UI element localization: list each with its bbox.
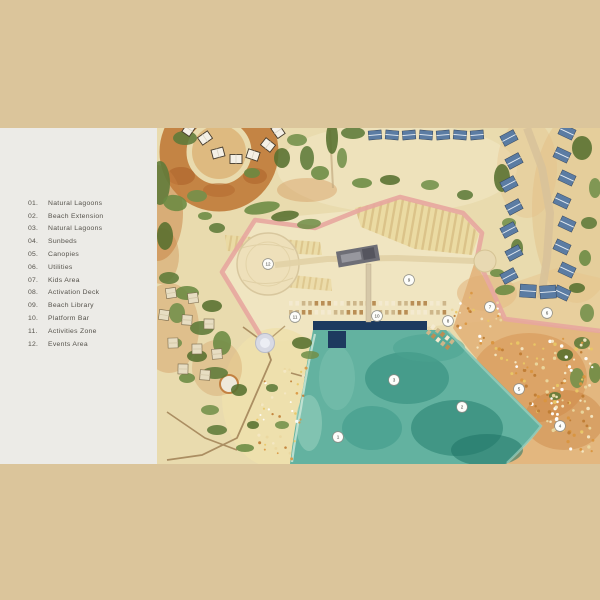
map-marker-12: 12 (263, 259, 274, 270)
legend-item-label: Natural Lagoons (48, 225, 102, 232)
legend-item-number: 10. (28, 315, 48, 322)
map-marker-2: 2 (457, 402, 468, 413)
legend-item-number: 05. (28, 251, 48, 258)
masterplan-aerial-rendering: 123456789101112 (157, 128, 600, 464)
legend-item: 05. Canopies (28, 248, 153, 261)
map-marker-4: 4 (555, 421, 566, 432)
legend-item-label: Activities Zone (48, 328, 97, 335)
legend-item-label: Utilities (48, 264, 73, 271)
legend-item-label: Activation Deck (48, 289, 99, 296)
legend-item-number: 03. (28, 225, 48, 232)
svg-text:8: 8 (447, 319, 450, 324)
legend-item: 02. Beach Extension (28, 210, 153, 223)
map-marker-5: 5 (514, 384, 525, 395)
map-marker-6: 6 (542, 308, 553, 319)
pool-square (328, 331, 346, 348)
legend-list: 01. Natural Lagoons 02. Beach Extension … (28, 197, 153, 351)
map-marker-9: 9 (404, 275, 415, 286)
legend-item-number: 04. (28, 238, 48, 245)
svg-text:2: 2 (461, 405, 464, 410)
svg-text:6: 6 (546, 311, 549, 316)
legend-item: 09. Beach Library (28, 299, 153, 312)
legend-item-number: 11. (28, 328, 48, 335)
legend-item-label: Beach Library (48, 302, 94, 309)
svg-text:10: 10 (374, 314, 380, 319)
lap-pool (313, 321, 427, 330)
map-marker-11: 11 (290, 312, 301, 323)
plaza-circle (474, 250, 496, 272)
pier-walkway (366, 264, 371, 322)
legend-item: 12. Events Area (28, 338, 153, 351)
content-band: 01. Natural Lagoons 02. Beach Extension … (0, 128, 600, 464)
legend-item-number: 09. (28, 302, 48, 309)
legend-item-number: 12. (28, 341, 48, 348)
legend-item-label: Platform Bar (48, 315, 89, 322)
legend-item-number: 08. (28, 289, 48, 296)
svg-text:5: 5 (518, 387, 521, 392)
roundabout (256, 334, 275, 353)
map-marker-3: 3 (389, 375, 400, 386)
legend-item-label: Natural Lagoons (48, 200, 102, 207)
legend-item: 04. Sunbeds (28, 235, 153, 248)
masterplan-map: 123456789101112 (157, 128, 600, 464)
map-marker-8: 8 (443, 316, 454, 327)
legend-item-label: Beach Extension (48, 213, 104, 220)
svg-text:7: 7 (489, 305, 492, 310)
legend-item: 10. Platform Bar (28, 312, 153, 325)
legend-item: 08. Activation Deck (28, 287, 153, 300)
legend-item: 01. Natural Lagoons (28, 197, 153, 210)
svg-text:4: 4 (559, 424, 562, 429)
legend-item: 11. Activities Zone (28, 325, 153, 338)
legend-item-number: 06. (28, 264, 48, 271)
legend-item-label: Events Area (48, 341, 88, 348)
legend-item-number: 01. (28, 200, 48, 207)
map-marker-1: 1 (333, 432, 344, 443)
svg-text:12: 12 (265, 262, 271, 267)
legend-item: 07. Kids Area (28, 274, 153, 287)
svg-text:9: 9 (408, 278, 411, 283)
legend-panel: 01. Natural Lagoons 02. Beach Extension … (0, 128, 157, 464)
legend-item-label: Canopies (48, 251, 79, 258)
legend-item: 06. Utilities (28, 261, 153, 274)
legend-item-label: Sunbeds (48, 238, 77, 245)
legend-item-number: 07. (28, 277, 48, 284)
map-marker-10: 10 (372, 311, 383, 322)
map-marker-7: 7 (485, 302, 496, 313)
svg-text:1: 1 (337, 435, 340, 440)
legend-item-number: 02. (28, 213, 48, 220)
svg-text:3: 3 (393, 378, 396, 383)
slide-background: { "page": { "background_color": "#dbc59b… (0, 0, 600, 600)
svg-text:11: 11 (293, 315, 298, 320)
legend-item: 03. Natural Lagoons (28, 223, 153, 236)
legend-item-label: Kids Area (48, 277, 80, 284)
